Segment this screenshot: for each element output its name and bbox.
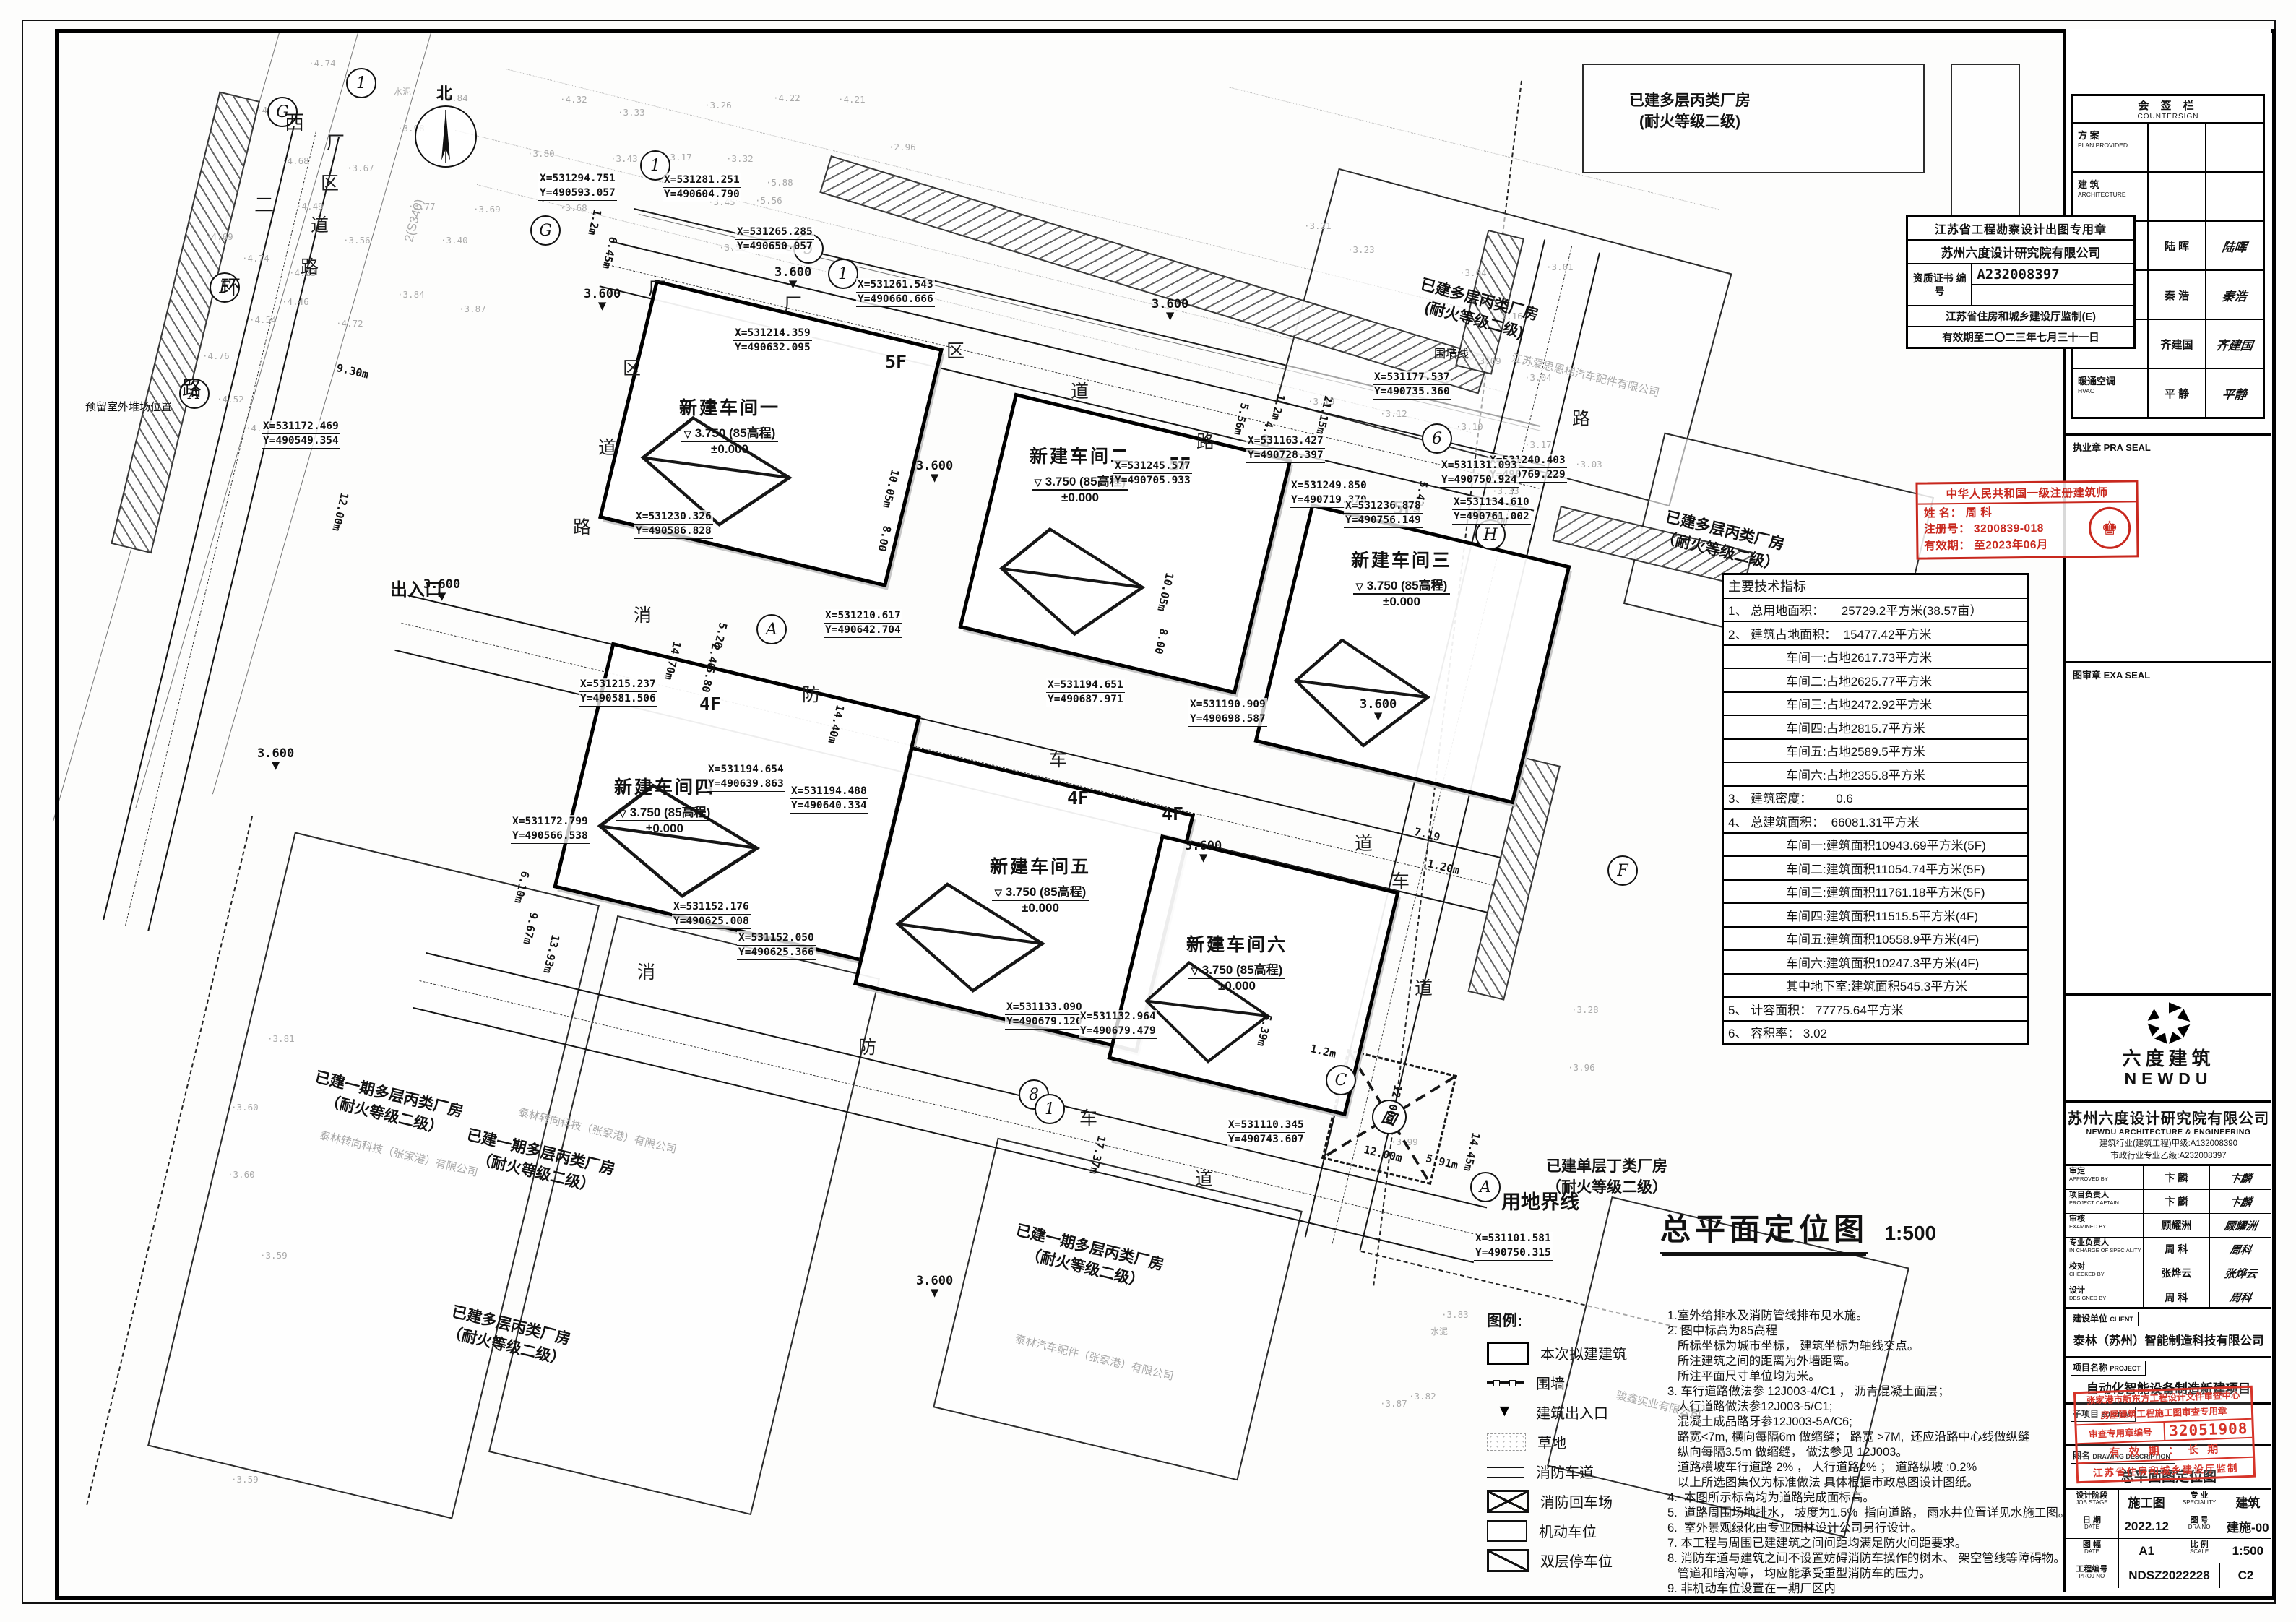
building-name: 新建车间六 [1186, 931, 1287, 957]
legend-symbol-icon [1487, 1520, 1527, 1542]
indicator-row: 车间六:建筑面积10247.3平方米(4F) [1724, 951, 2027, 975]
road-name-character: 防 [802, 681, 820, 707]
newdu-logo-icon [2146, 1001, 2192, 1045]
legend-item-label: 机动车位 [1539, 1520, 1597, 1541]
date-en: DATE [2066, 1524, 2118, 1530]
elevation-triangle-icon: ▼ [257, 759, 294, 772]
discipline-en: ARCHITECTURE [2078, 191, 2147, 198]
elevation-triangle-icon: ▼ [916, 1287, 953, 1299]
exa-seal-section: 图审章 EXA SEAL [2066, 661, 2271, 993]
approval-name: 卞 麟 [2144, 1166, 2210, 1189]
size-en: DATE [2066, 1549, 2118, 1555]
approval-role-en: DESIGNED BY [2069, 1295, 2143, 1301]
coordinate-y: Y=490650.057 [735, 240, 814, 254]
elevation-marker: 3.600▼ [1360, 699, 1397, 722]
coordinate-y: Y=490728.397 [1246, 449, 1325, 463]
legend-item-label: 消防车道 [1536, 1461, 1594, 1482]
approval-role-cn: 校对 [2069, 1263, 2143, 1272]
coordinate-x: X=531236.878 [1344, 499, 1423, 514]
legend-items: 本次拟建建筑 围墙 建筑出入口 草地 消防车道 [1487, 1338, 1627, 1575]
legend-item-label: 草地 [1537, 1431, 1566, 1452]
note-line: 路宽<7m, 横向每隔6m 做缩缝； 路宽 >7M, 还应沿路中心线做纵缝 [1667, 1430, 2058, 1445]
floor-count-tag: 4F [1162, 803, 1183, 824]
elevation-marker: 3.600▼ [1152, 299, 1188, 322]
legend-item: 双层停车位 [1487, 1545, 1627, 1575]
coordinate-x: X=531152.176 [672, 900, 751, 915]
legend-symbol-icon [1487, 1403, 1524, 1422]
indicator-row: 6、 容积率： 3.02 [1724, 1022, 2027, 1044]
building-datum: ±0.000 [614, 821, 715, 836]
indicator-row: 车间五:建筑面积10558.9平方米(4F) [1724, 928, 2027, 952]
legend-item: 建筑出入口 [1487, 1397, 1627, 1427]
coordinate-y: Y=490750.315 [1474, 1246, 1553, 1261]
discipline-signature: 平静 [2203, 369, 2266, 417]
indicator-row: 车间二:建筑面积11054.74平方米(5F) [1724, 857, 2027, 881]
building-label: 新建车间五 3.750 (85高程) ±0.000 [990, 853, 1091, 915]
elevation-marker: 3.600▼ [774, 267, 811, 290]
firm-cert-2: 市政行业专业乙级:A232008397 [2066, 1149, 2271, 1161]
note-line: 3. 车行道路做法参 12J003-4/C1 ， 沥青混凝土面层； [1667, 1384, 2058, 1399]
coordinate-label: X=531133.090 Y=490679.120 [1005, 1001, 1084, 1030]
coordinate-y: Y=490642.704 [824, 624, 902, 638]
project-label-en: PROJECT [2110, 1365, 2141, 1372]
note-line: 8. 消防车道与建筑之间不设置妨碍消防车操作的树木、 架空管线等障碍物。 [1667, 1551, 2058, 1566]
note-line: 所标坐标为城市坐标， 建筑坐标为轴线交点。 [1667, 1339, 2058, 1354]
plan-text-label: 环 [221, 272, 241, 300]
technical-indicators-table: 主要技术指标1、 总用地面积： 25729.2平方米(38.57亩）2、 建筑占… [1722, 573, 2029, 1045]
examination-stamp: 张家港市新东方工程设计文件审查中心 房屋建筑工程施工图审查专用章 审查专用章编号… [2073, 1386, 2256, 1483]
qual-cert-number2 [1972, 285, 2133, 305]
coordinate-x: X=531265.285 [735, 225, 814, 240]
discipline-label: 方 案PLAN PROVIDED [2073, 124, 2149, 171]
coordinate-x: X=531294.751 [538, 172, 617, 186]
coordinate-x: X=531249.850 [1290, 479, 1368, 493]
legend-item-label: 双层停车位 [1540, 1550, 1613, 1571]
approval-signature: 张烨云 [2208, 1261, 2274, 1285]
building-label: 新建车间一 3.750 (85高程) ±0.000 [679, 394, 780, 457]
discipline-name: 平 静 [2149, 369, 2206, 417]
approval-role-cn: 专业负责人 [2069, 1239, 2143, 1248]
qual-stamp-line1: 江苏省工程勘察设计出图专用章 [1908, 217, 2133, 241]
coordinate-y: Y=490640.334 [790, 799, 868, 814]
coordinate-y: Y=490679.120 [1005, 1015, 1084, 1030]
floor-count-tag: 4F [699, 694, 721, 715]
exam-number-label: 审查专用章编号 [2076, 1422, 2165, 1442]
discipline-signature [2203, 173, 2266, 220]
coordinate-x: X=531172.469 [262, 420, 340, 434]
plan-text-label: 用地界线 [1501, 1186, 1579, 1215]
indicator-row: 其中地下室:建筑面积545.3平方米 [1724, 975, 2027, 998]
countersign-title-cn: 会 签 栏 [2073, 98, 2263, 113]
coordinate-label: X=531110.345 Y=490743.607 [1227, 1118, 1305, 1147]
firm-name: 苏州六度设计研究院有限公司 [2066, 1106, 2271, 1128]
coordinate-y: Y=490625.008 [672, 915, 751, 929]
note-line: 1.室外给排水及消防管线排布见水施。 [1667, 1308, 2058, 1324]
approval-role-cn: 项目负责人 [2069, 1191, 2143, 1200]
scale-en: SCALE [2175, 1549, 2224, 1555]
building-label: 新建车间六 3.750 (85高程) ±0.000 [1186, 931, 1287, 993]
legend-item-label: 围墙 [1536, 1372, 1565, 1393]
coordinate-x: X=531163.427 [1246, 434, 1325, 449]
coordinate-label: X=531163.427 Y=490728.397 [1246, 434, 1325, 463]
approval-role-en: CHECKED BY [2069, 1272, 2143, 1277]
indicator-row: 车间三:占地2472.92平方米 [1724, 693, 2027, 717]
note-line: 7. 本工程与周围已建建筑之间间距均满足防火间距要求。 [1667, 1536, 2058, 1551]
coordinate-y: Y=490735.360 [1373, 385, 1451, 400]
road-name-character: 道 [1415, 974, 1433, 1000]
plan-text-label: 预留室外堆场位置 [85, 399, 172, 414]
discipline-label: 暖通空调HVAC [2073, 369, 2149, 417]
coordinate-label: X=531194.488 Y=490640.334 [790, 785, 868, 814]
road-name-character: 区 [623, 354, 641, 380]
plan-text-label: 出入口 [390, 575, 442, 600]
countersign-row: 建 筑ARCHITECTURE [2073, 173, 2263, 222]
countersign-row: 暖通空调HVAC 平 静 平静 [2073, 369, 2263, 417]
approval-signature: 卞麟 [2208, 1166, 2274, 1189]
project-label-cn: 项目名称 [2073, 1363, 2107, 1373]
note-line: 纵向每隔3.5m 做缩缝， 做法参见 12J003。 [1667, 1445, 2058, 1460]
indicator-row: 车间四:占地2815.7平方米 [1724, 716, 2027, 740]
countersign-row: 方 案PLAN PROVIDED [2073, 124, 2263, 173]
meta-row-proj: 工程编号PROJ NO NDSZ2022228 C2 [2066, 1563, 2271, 1588]
countersign-header: 会 签 栏 COUNTERSIGN [2073, 96, 2263, 124]
spec-label: 专 业SPECIALITY [2175, 1490, 2224, 1514]
qual-stamp-line3: 江苏省住房和城乡建设厅监制(E) [1908, 306, 2133, 327]
approval-role-cn: 设计 [2069, 1287, 2143, 1295]
qual-stamp-line4: 有效期至二〇二三年七月三十一日 [1908, 327, 2133, 347]
building-datum: ±0.000 [1351, 595, 1452, 609]
coordinate-x: X=531152.050 [737, 931, 816, 946]
elevation-marker: 3.600▼ [1185, 841, 1222, 864]
coordinate-y: Y=490586.828 [634, 525, 713, 539]
road-name-character: 路 [301, 253, 319, 279]
coordinate-label: X=531101.581 Y=490750.315 [1474, 1232, 1553, 1261]
discipline-label: 建 筑ARCHITECTURE [2073, 173, 2149, 220]
coordinate-y: Y=490625.366 [737, 946, 816, 960]
road-name-character: 道 [1195, 1165, 1213, 1191]
grid-axis-bubble: F [1607, 855, 1638, 886]
elevation-triangle-icon: ▼ [916, 472, 953, 484]
approval-role-en: IN CHARGE OF SPECIALITY [2069, 1248, 2143, 1254]
approval-role: 审核EXAMINED BY [2066, 1214, 2144, 1237]
existing-building-fire-rating: (耐火等级二级) [1629, 111, 1751, 132]
indicator-row: 3、 建筑密度： 0.6 [1724, 787, 2027, 811]
building-name: 新建车间五 [990, 853, 1091, 879]
grid-axis-bubble: C [1326, 1065, 1356, 1095]
coordinate-y: Y=490750.924 [1440, 473, 1519, 488]
coordinate-y: Y=490679.479 [1079, 1024, 1157, 1039]
grid-axis-bubble: 1 [346, 68, 376, 98]
approval-name: 卞 麟 [2144, 1190, 2210, 1213]
qual-stamp-line2: 苏州六度设计研究院有限公司 [1908, 241, 2133, 264]
meta-row-date: 日 期DATE 2022.12 图 号DRA NO 建施-00 [2066, 1514, 2271, 1539]
approval-role: 项目负责人PROJECT CAPTAIN [2066, 1190, 2144, 1213]
firm-cert-1: 建筑行业(建筑工程)甲级:A132008390 [2066, 1137, 2271, 1149]
client-label-cn: 建设单位 [2073, 1313, 2107, 1324]
drawing-sheet: 回 [0, 0, 2296, 1622]
pra-seal-label: 执业章 PRA SEAL [2066, 436, 2271, 454]
coordinate-y: Y=490593.057 [538, 186, 617, 201]
elevation-marker: 3.600▼ [584, 289, 621, 312]
coordinate-label: X=531194.651 Y=490687.971 [1046, 678, 1125, 707]
note-line: 道路横坡车行道路 2% ， 人行道路2% ； 道路纵坡 :0.2% [1667, 1460, 2058, 1475]
note-line: 4. 本图所示标高均为道路完成面标高。 [1667, 1491, 2058, 1506]
coordinate-x: X=531101.581 [1474, 1232, 1553, 1246]
road-name-character: 消 [637, 958, 655, 984]
building-level: 3.750 (85高程) [616, 802, 714, 821]
indicator-row: 车间五:占地2589.5平方米 [1724, 740, 2027, 764]
building-label: 新建车间四 3.750 (85高程) ±0.000 [614, 773, 715, 836]
approval-role-cn: 审核 [2069, 1215, 2143, 1224]
coordinate-label: X=531261.543 Y=490660.666 [856, 278, 935, 307]
coordinate-label: X=531265.285 Y=490650.057 [735, 225, 814, 254]
approval-row: 项目负责人PROJECT CAPTAIN 卞 麟 卞麟 [2066, 1190, 2271, 1214]
discipline-en: PLAN PROVIDED [2078, 142, 2147, 149]
drano-value: 建施-00 [2224, 1514, 2271, 1538]
road-name-character: 厂 [648, 275, 666, 301]
note-line: 以上所选图集仅为标准做法 具体根据市政总图设计图纸。 [1667, 1475, 2058, 1491]
coordinate-label: X=531281.251 Y=490604.790 [663, 173, 741, 202]
approval-row: 校对CHECKED BY 张烨云 张烨云 [2066, 1261, 2271, 1285]
legend: 图例: 本次拟建建筑 围墙 建筑出入口 草地 消防车道 [1487, 1309, 1627, 1575]
indicator-row: 车间一:建筑面积10943.69平方米(5F) [1724, 834, 2027, 858]
north-arrow: 北 [415, 81, 474, 140]
discipline-cn: 方 案 [2078, 128, 2147, 142]
note-line: 2. 图中标高为85高程 [1667, 1324, 2058, 1339]
coordinate-y: Y=490705.933 [1113, 474, 1192, 488]
coordinate-label: X=531190.909 Y=490698.587 [1188, 698, 1267, 727]
coordinate-x: X=531110.345 [1227, 1118, 1305, 1133]
plan-text-label: 西 [285, 107, 304, 135]
coordinate-x: X=531190.909 [1188, 698, 1267, 712]
legend-item: 围墙 [1487, 1368, 1627, 1397]
coordinate-x: X=531133.090 [1005, 1001, 1084, 1015]
registered-architect-stamp: 中华人民共和国一级注册建筑师 姓 名： 周 科 注册号： 3200839-018… [1915, 480, 2139, 560]
coordinate-label: X=531177.537 Y=490735.360 [1373, 371, 1451, 400]
coordinate-label: X=531245.577 Y=490705.933 [1113, 460, 1192, 488]
elevation-triangle-icon: ▼ [1152, 310, 1188, 322]
discipline-name [2149, 124, 2206, 171]
client-section: 建设单位 CLIENT 泰林（苏州）智能制造科技有限公司 [2066, 1307, 2271, 1356]
road-name-character: 路 [1196, 428, 1214, 454]
note-line: 管道和暗沟等， 均应能承受重型消防车的压力。 [1667, 1566, 2058, 1582]
note-line: 人行道路做法参12J003-5/C1; [1667, 1399, 2058, 1415]
qualification-stamp: 江苏省工程勘察设计出图专用章 苏州六度设计研究院有限公司 资质证书 编 号 A2… [1906, 215, 2136, 349]
building-datum: ±0.000 [990, 901, 1091, 915]
road-name-character: 道 [1071, 377, 1089, 403]
existing-building-type: 已建多层丙类厂房 [1629, 90, 1751, 111]
client-name: 泰林（苏州）智能制造科技有限公司 [2071, 1331, 2266, 1348]
building-level: 3.750 (85高程) [1353, 575, 1451, 595]
plan-text-label: 围墙线 [1434, 344, 1469, 361]
coordinate-y: Y=490698.587 [1188, 712, 1267, 727]
existing-building-label: 已建多层丙类厂房 (耐火等级二级) [1629, 90, 1751, 133]
legend-symbol-icon [1487, 1433, 1526, 1451]
spec-en: SPECIALITY [2175, 1500, 2224, 1506]
qual-stamp-cert: 资质证书 编 号 A232008397 [1908, 264, 2133, 306]
coordinate-label: X=531172.799 Y=490566.538 [511, 815, 590, 844]
legend-symbol-icon [1487, 1381, 1524, 1384]
building-level: 3.750 (85高程) [992, 881, 1089, 901]
coordinate-x: X=531132.964 [1079, 1010, 1157, 1024]
coordinate-label: X=531194.654 Y=490639.863 [707, 763, 785, 792]
meta-row-stage: 设计阶段JOB STAGE 施工图 专 业SPECIALITY 建筑 [2066, 1490, 2271, 1514]
coordinate-label: X=531214.359 Y=490632.095 [733, 327, 812, 355]
coordinate-x: X=531210.617 [824, 609, 902, 624]
approval-name: 顾耀洲 [2144, 1214, 2210, 1237]
coordinate-x: X=531230.326 [634, 510, 713, 525]
coordinate-x: X=531177.537 [1373, 371, 1451, 385]
road-name-character: 区 [321, 169, 339, 195]
firm-logo-section: 六度建筑 NEWDU [2066, 993, 2271, 1100]
building-name: 新建车间一 [679, 394, 780, 420]
legend-item: 消防回车场 [1487, 1486, 1627, 1516]
client-label-en: CLIENT [2110, 1316, 2133, 1323]
coordinate-y: Y=490743.607 [1227, 1133, 1305, 1147]
legend-item: 草地 [1487, 1427, 1627, 1457]
coordinate-x: X=531194.488 [790, 785, 868, 799]
legend-symbol-icon [1487, 1467, 1524, 1478]
legend-item-label: 本次拟建建筑 [1540, 1342, 1627, 1363]
note-line: 5. 道路周围场地排水， 坡度为1.5% 指向道路， 雨水井位置详见水施工图。 [1667, 1506, 2058, 1521]
approval-role: 专业负责人IN CHARGE OF SPECIALITY [2066, 1238, 2144, 1261]
road-name-character: 路 [573, 513, 591, 539]
road-name-character: 路 [1572, 405, 1590, 431]
north-label: 北 [415, 81, 474, 104]
building-level: 3.750 (85高程) [1188, 959, 1286, 979]
floor-count-tag: 4F [1067, 788, 1089, 808]
road-name-character: 厂 [784, 290, 802, 316]
plan-title-scale: 1:500 [1884, 1222, 1936, 1244]
legend-symbol-icon [1487, 1342, 1529, 1365]
discipline-name: 秦 浩 [2149, 271, 2206, 319]
coordinate-label: X=531172.469 Y=490549.354 [262, 420, 340, 449]
approval-signature: 卞麟 [2208, 1190, 2274, 1213]
building-level: 3.750 (85高程) [681, 423, 779, 442]
exam-number: 32051908 [2165, 1419, 2252, 1439]
coordinate-x: X=531214.359 [733, 327, 812, 341]
coordinate-y: Y=490549.354 [262, 434, 340, 449]
road-name-character: 消 [634, 601, 652, 627]
coordinate-y: Y=490632.095 [733, 341, 812, 355]
grid-axis-bubble: 1 [1035, 1094, 1065, 1124]
date-value: 2022.12 [2119, 1514, 2175, 1538]
building-label: 新建车间三 3.750 (85高程) ±0.000 [1351, 546, 1452, 609]
road-name-character: 车 [1079, 1104, 1097, 1130]
legend-symbol-icon [1487, 1490, 1529, 1513]
legend-item: 机动车位 [1487, 1516, 1627, 1545]
scale-label: 比 例SCALE [2175, 1539, 2224, 1563]
note-line: 6. 室外景观绿化由专业园林设计公司另行设计。 [1667, 1521, 2058, 1536]
sheet-code: C2 [2220, 1563, 2271, 1588]
coordinate-label: X=531152.050 Y=490625.366 [737, 931, 816, 960]
coordinate-label: X=531230.326 Y=490586.828 [634, 510, 713, 539]
meta-row-size: 图 幅DATE A1 比 例SCALE 1:500 [2066, 1539, 2271, 1563]
grid-axis-bubble: G [530, 215, 561, 246]
grid-axis-bubble: 6 [1422, 423, 1452, 454]
firm-logo-cn: 六度建筑 [2066, 1048, 2271, 1069]
road-name-character: 厂 [327, 129, 345, 155]
road-name-character: 车 [1049, 746, 1067, 772]
approval-name: 张烨云 [2144, 1261, 2210, 1285]
coordinate-y: Y=490566.538 [511, 829, 590, 844]
grid-axis-bubble: 1 [828, 259, 858, 289]
building-name: 新建车间四 [614, 773, 715, 799]
coordinate-x: X=531215.237 [579, 678, 657, 692]
road-name-character: 区 [946, 337, 964, 363]
road-name-character: 道 [598, 433, 616, 460]
compass-icon [415, 105, 477, 168]
arch-stamp-title: 中华人民共和国一级注册建筑师 [1917, 482, 2136, 504]
coordinate-label: X=531132.964 Y=490679.479 [1079, 1010, 1157, 1039]
discipline-signature: 秦浩 [2203, 271, 2266, 319]
road-name-character: 车 [1391, 867, 1410, 893]
existing-building-type: 已建单层丁类厂房 [1546, 1156, 1667, 1177]
discipline-cn: 暖通空调 [2078, 374, 2147, 387]
approval-role-en: EXAMINED BY [2069, 1224, 2143, 1230]
coordinate-label: X=531134.610 Y=490761.002 [1452, 496, 1531, 525]
indicator-row: 车间一:占地2617.73平方米 [1724, 646, 2027, 670]
approvals-table: 审定APPROVED BY 卞 麟 卞麟 项目负责人PROJECT CAPTAI… [2066, 1164, 2271, 1307]
stage-en: JOB STAGE [2066, 1500, 2118, 1506]
legend-item: 本次拟建建筑 [1487, 1338, 1627, 1368]
indicator-row: 主要技术指标 [1724, 575, 2027, 599]
note-line: 混凝土成品路牙参12J003-5A/C6; [1667, 1415, 2058, 1430]
indicator-row: 2、 建筑占地面积： 15477.42平方米 [1724, 622, 2027, 646]
indicator-row: 5、 计容面积： 77775.64平方米 [1724, 998, 2027, 1022]
approval-signature: 顾耀洲 [2208, 1214, 2274, 1237]
coordinate-label: X=531152.176 Y=490625.008 [672, 900, 751, 929]
legend-title: 图例: [1487, 1309, 1627, 1331]
plan-title-text: 总平面定位图 [1660, 1205, 1868, 1254]
approval-role: 审定APPROVED BY [2066, 1166, 2144, 1189]
approval-name: 周 科 [2144, 1285, 2210, 1309]
discipline-name: 齐建国 [2149, 320, 2206, 368]
qual-cert-label: 资质证书 编 号 [1908, 264, 1972, 305]
approval-role: 设计DESIGNED BY [2066, 1285, 2144, 1309]
exa-seal-label: 图审章 EXA SEAL [2066, 663, 2271, 681]
proj-en: PROJ NO [2066, 1574, 2118, 1579]
floor-count-tag: 5F [885, 351, 907, 372]
elevation-marker: 3.600▼ [916, 461, 953, 484]
discipline-name: 陆 晖 [2149, 222, 2206, 269]
indicator-row: 车间六:占地2355.8平方米 [1724, 763, 2027, 787]
building-datum: ±0.000 [1186, 979, 1287, 993]
coordinate-x: X=531261.543 [856, 278, 935, 293]
building-datum: ±0.000 [679, 442, 780, 457]
discipline-signature: 陆晖 [2203, 222, 2266, 269]
indicator-row: 4、 总建筑面积： 66081.31平方米 [1724, 810, 2027, 834]
coordinate-label: X=531131.093 Y=490750.924 [1440, 459, 1519, 488]
coordinate-label: X=531215.237 Y=490581.506 [579, 678, 657, 707]
approval-row: 审核EXAMINED BY 顾耀洲 顾耀洲 [2066, 1214, 2271, 1238]
building-datum: ±0.000 [1030, 491, 1131, 505]
approval-role-en: APPROVED BY [2069, 1176, 2143, 1182]
approval-signature: 周科 [2208, 1238, 2274, 1261]
approval-role: 校对CHECKED BY [2066, 1261, 2144, 1285]
indicator-row: 车间二:占地2625.77平方米 [1724, 669, 2027, 693]
coordinate-label: X=531236.878 Y=490756.149 [1344, 499, 1423, 528]
coordinate-y: Y=490604.790 [663, 188, 741, 202]
elevation-marker: 3.600▼ [916, 1276, 953, 1299]
arch-stamp-body: 姓 名： 周 科 注册号： 3200839-018 有效期： 至2023年06月 [1918, 502, 2137, 558]
proj-value: NDSZ2022228 [2119, 1563, 2220, 1588]
coordinate-x: X=531134.610 [1452, 496, 1531, 510]
coordinate-x: X=531172.799 [511, 815, 590, 829]
plan-title: 总平面定位图 1:500 [1660, 1205, 1936, 1254]
road-name-character: 防 [858, 1033, 876, 1059]
coordinate-y: Y=490687.971 [1046, 693, 1125, 707]
